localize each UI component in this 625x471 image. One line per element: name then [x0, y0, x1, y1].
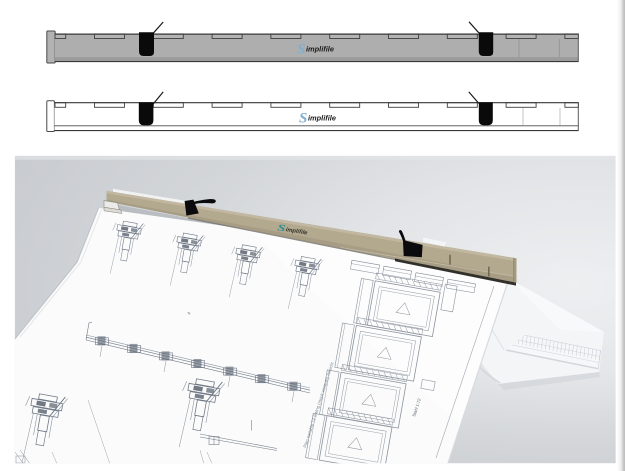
svg-text:S: S [299, 111, 307, 127]
svg-text:implifile: implifile [306, 44, 334, 53]
svg-text:implifile: implifile [308, 113, 336, 122]
svg-text:S: S [297, 42, 305, 58]
